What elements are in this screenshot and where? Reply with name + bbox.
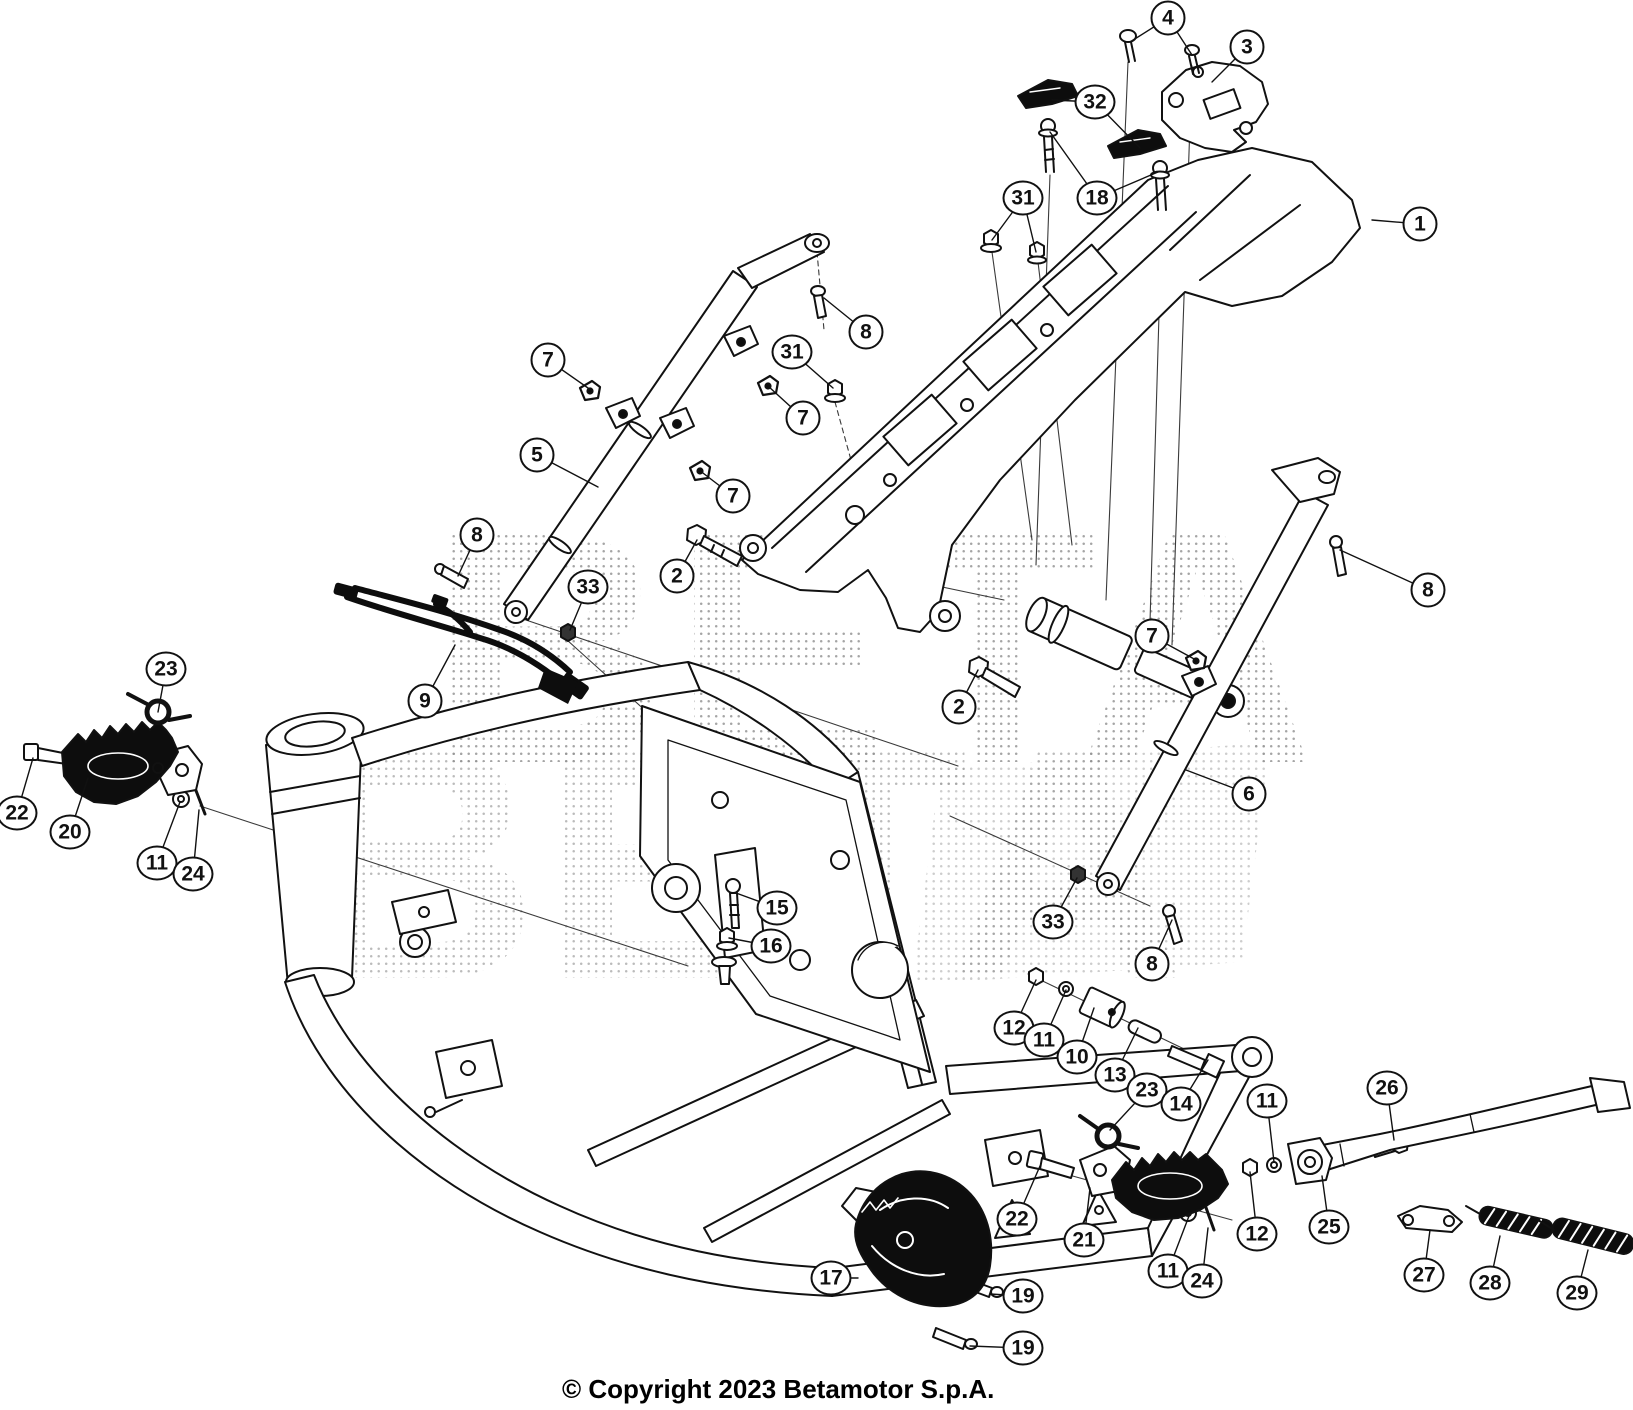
callout-2[interactable]: 2 <box>942 690 977 725</box>
callout-12[interactable]: 12 <box>1237 1217 1278 1252</box>
callout-label: 5 <box>531 443 543 467</box>
callout-label: 15 <box>765 896 788 920</box>
callout-label: 14 <box>1169 1092 1192 1116</box>
callout-label: 7 <box>727 484 739 508</box>
callout-7[interactable]: 7 <box>1135 619 1170 654</box>
callout-33[interactable]: 33 <box>568 570 609 605</box>
callout-19[interactable]: 19 <box>1003 1331 1044 1366</box>
callout-2[interactable]: 2 <box>660 559 695 594</box>
callout-7[interactable]: 7 <box>716 479 751 514</box>
callout-label: 22 <box>5 801 28 825</box>
callout-label: 25 <box>1317 1215 1340 1239</box>
callout-label: 16 <box>759 934 782 958</box>
callout-29[interactable]: 29 <box>1557 1276 1598 1311</box>
callout-11[interactable]: 11 <box>137 846 178 881</box>
callout-label: 11 <box>1033 1028 1055 1052</box>
callout-label: 31 <box>780 340 803 364</box>
callout-label: 10 <box>1065 1045 1088 1069</box>
watermark-blob <box>912 742 1270 985</box>
callout-label: 27 <box>1412 1263 1435 1287</box>
callout-label: 12 <box>1245 1222 1268 1246</box>
callout-label: 2 <box>953 695 965 719</box>
callout-25[interactable]: 25 <box>1309 1210 1350 1245</box>
callout-22[interactable]: 22 <box>997 1202 1038 1237</box>
callout-3[interactable]: 3 <box>1230 30 1265 65</box>
callout-label: 7 <box>1146 624 1158 648</box>
callout-label: 7 <box>797 406 809 430</box>
callout-label: 33 <box>576 575 599 599</box>
callout-label: 3 <box>1241 35 1253 59</box>
callout-20[interactable]: 20 <box>50 815 91 850</box>
callout-15[interactable]: 15 <box>757 891 798 926</box>
callout-label: 28 <box>1478 1271 1501 1295</box>
callout-label: 13 <box>1103 1063 1126 1087</box>
callout-19[interactable]: 19 <box>1003 1279 1044 1314</box>
callout-14[interactable]: 14 <box>1161 1087 1202 1122</box>
callout-label: 24 <box>1190 1269 1213 1293</box>
callout-label: 7 <box>542 348 554 372</box>
callout-9[interactable]: 9 <box>408 684 443 719</box>
callout-1[interactable]: 1 <box>1403 207 1438 242</box>
callout-label: 11 <box>1256 1089 1278 1113</box>
callout-label: 8 <box>471 523 483 547</box>
callout-label: 21 <box>1072 1228 1095 1252</box>
callout-7[interactable]: 7 <box>531 343 566 378</box>
callout-label: 29 <box>1565 1281 1588 1305</box>
callout-label: 23 <box>154 657 177 681</box>
callout-label: 12 <box>1002 1016 1025 1040</box>
callout-10[interactable]: 10 <box>1057 1040 1098 1075</box>
callout-8[interactable]: 8 <box>1411 573 1446 608</box>
diagram-artwork: BETA BETA <box>0 0 1633 1410</box>
callout-33[interactable]: 33 <box>1033 905 1074 940</box>
callout-8[interactable]: 8 <box>460 518 495 553</box>
callout-label: 1 <box>1414 212 1426 236</box>
callout-label: 6 <box>1243 782 1255 806</box>
callout-17[interactable]: 17 <box>811 1261 852 1296</box>
callout-27[interactable]: 27 <box>1404 1258 1445 1293</box>
callout-26[interactable]: 26 <box>1367 1071 1408 1106</box>
callout-6[interactable]: 6 <box>1232 777 1267 812</box>
callout-5[interactable]: 5 <box>520 438 555 473</box>
copyright-line: © Copyright 2023 Betamotor S.p.A. <box>562 1374 994 1405</box>
callout-label: 18 <box>1085 186 1108 210</box>
callout-31[interactable]: 31 <box>772 335 813 370</box>
callout-label: 32 <box>1083 90 1106 114</box>
callout-32[interactable]: 32 <box>1075 85 1116 120</box>
callout-label: 2 <box>671 564 683 588</box>
left-footrest <box>62 694 202 804</box>
callout-18[interactable]: 18 <box>1077 181 1118 216</box>
callout-label: 8 <box>1146 952 1158 976</box>
callout-label: 11 <box>1157 1259 1179 1283</box>
callout-label: 8 <box>860 320 872 344</box>
callout-11[interactable]: 11 <box>1247 1084 1288 1119</box>
callout-label: 11 <box>146 851 168 875</box>
callout-label: 26 <box>1375 1076 1398 1100</box>
callout-8[interactable]: 8 <box>849 315 884 350</box>
callout-label: 17 <box>819 1266 842 1290</box>
callout-31[interactable]: 31 <box>1003 181 1044 216</box>
callout-28[interactable]: 28 <box>1470 1266 1511 1301</box>
callout-label: 19 <box>1011 1284 1034 1308</box>
callout-16[interactable]: 16 <box>751 929 792 964</box>
callout-label: 8 <box>1422 578 1434 602</box>
callout-label: 9 <box>419 689 431 713</box>
headstock-body <box>266 728 362 985</box>
callout-4[interactable]: 4 <box>1151 1 1186 36</box>
callout-7[interactable]: 7 <box>786 401 821 436</box>
callout-label: 33 <box>1041 910 1064 934</box>
callout-8[interactable]: 8 <box>1135 947 1170 982</box>
callout-21[interactable]: 21 <box>1064 1223 1105 1258</box>
callout-label: 20 <box>58 820 81 844</box>
callout-24[interactable]: 24 <box>173 857 214 892</box>
parts-diagram-page: BETA BETA <box>0 0 1633 1410</box>
callout-label: 31 <box>1011 186 1034 210</box>
callout-23[interactable]: 23 <box>146 652 187 687</box>
callout-label: 19 <box>1011 1336 1034 1360</box>
callout-label: 24 <box>181 862 204 886</box>
callout-24[interactable]: 24 <box>1182 1264 1223 1299</box>
callout-label: 23 <box>1135 1078 1158 1102</box>
callout-label: 22 <box>1005 1207 1028 1231</box>
callout-label: 4 <box>1162 6 1174 30</box>
